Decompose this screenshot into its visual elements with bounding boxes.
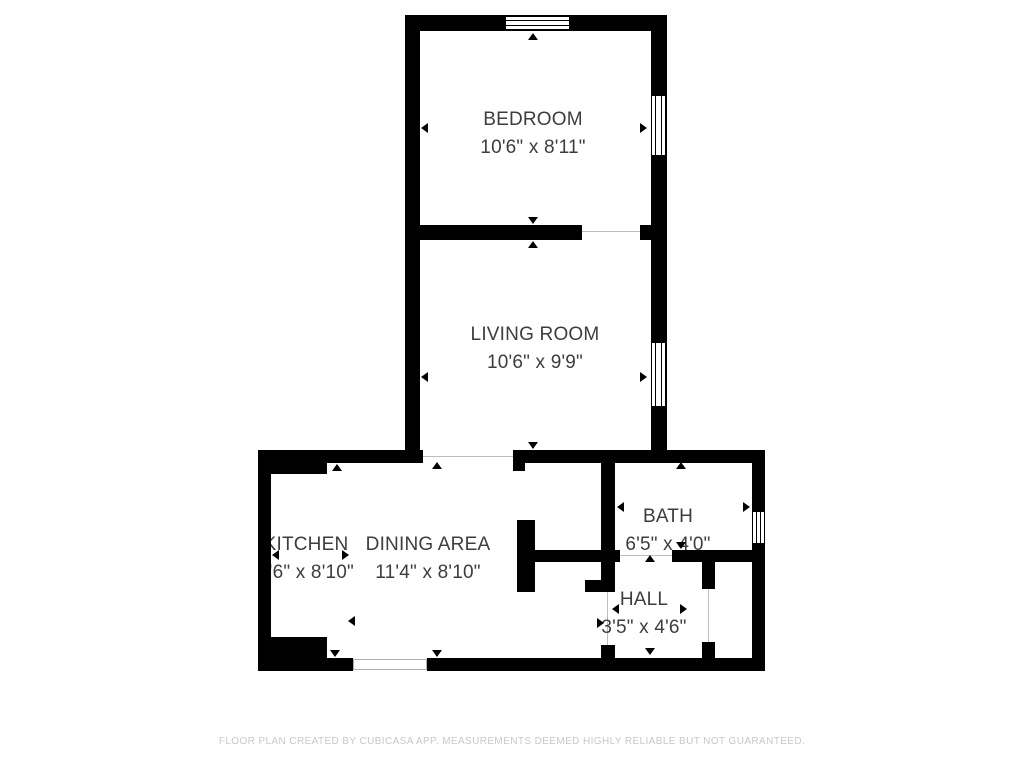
dimension-arrow-bedroom-top xyxy=(528,33,538,40)
dimension-arrow-living-right xyxy=(640,372,647,382)
window-pane xyxy=(655,342,662,407)
window-symbol-bedroom-right xyxy=(651,95,666,156)
dimension-arrow-bath-left xyxy=(617,502,624,512)
room-name-dining: DINING AREA xyxy=(328,531,528,559)
dimension-arrow-hall-left xyxy=(612,604,619,614)
window-pane xyxy=(756,511,761,544)
wall-hall-right-lower xyxy=(702,642,715,671)
dimension-arrow-living-bottom xyxy=(528,442,538,449)
entry-door-opening xyxy=(353,659,427,670)
footer-disclaimer: FLOOR PLAN CREATED BY CUBICASA APP. MEAS… xyxy=(0,736,1024,747)
dimension-arrow-hall-right xyxy=(680,604,687,614)
window-symbol-living-right xyxy=(651,342,666,407)
room-dims-dining: 11'4" x 8'10" xyxy=(328,559,528,587)
window-pane xyxy=(505,20,570,26)
room-label-living: LIVING ROOM 10'6" x 9'9" xyxy=(435,321,635,377)
wall-lower-top-right xyxy=(513,450,765,463)
dimension-arrow-bedroom-left xyxy=(421,123,428,133)
dimension-arrow-hall-top xyxy=(645,555,655,562)
opening-bedroom-living xyxy=(582,231,640,232)
window-pane xyxy=(655,95,662,156)
floor-plan: BEDROOM 10'6" x 8'11" LIVING ROOM 10'6" … xyxy=(0,0,1024,768)
wall-bath-bottom xyxy=(672,550,765,562)
dimension-arrow-bedroom-bottom xyxy=(528,217,538,224)
wall-dining-bath-divider xyxy=(601,462,615,592)
dimension-arrow-kitchen-bottom xyxy=(330,650,340,657)
wall-hall-right-upper xyxy=(702,562,715,589)
room-dims-hall: 3'5" x 4'6" xyxy=(574,614,714,642)
dimension-arrow-dining-left xyxy=(348,616,355,626)
dimension-arrow-hall-dims xyxy=(597,618,604,628)
dimension-arrow-living-top xyxy=(528,241,538,248)
dimension-arrow-bath-right xyxy=(743,502,750,512)
dimension-arrow-dining-top xyxy=(432,462,442,469)
room-dims-bedroom: 10'6" x 8'11" xyxy=(433,134,633,162)
window-symbol-bath-right xyxy=(752,511,765,544)
dimension-arrow-bedroom-right xyxy=(640,123,647,133)
dimension-arrow-kitchen-left xyxy=(272,550,279,560)
room-dims-living: 10'6" x 9'9" xyxy=(435,349,635,377)
dimension-arrow-kitchen-top xyxy=(332,464,342,471)
wall-hall-left-stub xyxy=(601,645,615,671)
opening-living-dining xyxy=(423,456,513,457)
window-symbol-bedroom-top xyxy=(505,16,570,30)
dimension-arrow-kitchen-right xyxy=(342,550,349,560)
room-name-bedroom: BEDROOM xyxy=(433,106,633,134)
wall-divider-stub xyxy=(640,225,653,240)
room-name-living: LIVING ROOM xyxy=(435,321,635,349)
dimension-arrow-dining-bottom xyxy=(432,650,442,657)
wall-bedroom-living-divider xyxy=(405,225,582,240)
dimension-arrow-living-left xyxy=(421,372,428,382)
dimension-arrow-hall-bottom xyxy=(645,648,655,655)
room-label-dining: DINING AREA 11'4" x 8'10" xyxy=(328,531,528,587)
room-label-bedroom: BEDROOM 10'6" x 8'11" xyxy=(433,106,633,162)
wall-bottom-left-segment xyxy=(258,658,353,671)
room-label-hall: HALL 3'5" x 4'6" xyxy=(574,586,714,642)
dimension-arrow-bath-bottom xyxy=(676,542,686,549)
wall-lower-top-stub xyxy=(513,450,525,471)
dimension-arrow-bath-top xyxy=(676,462,686,469)
